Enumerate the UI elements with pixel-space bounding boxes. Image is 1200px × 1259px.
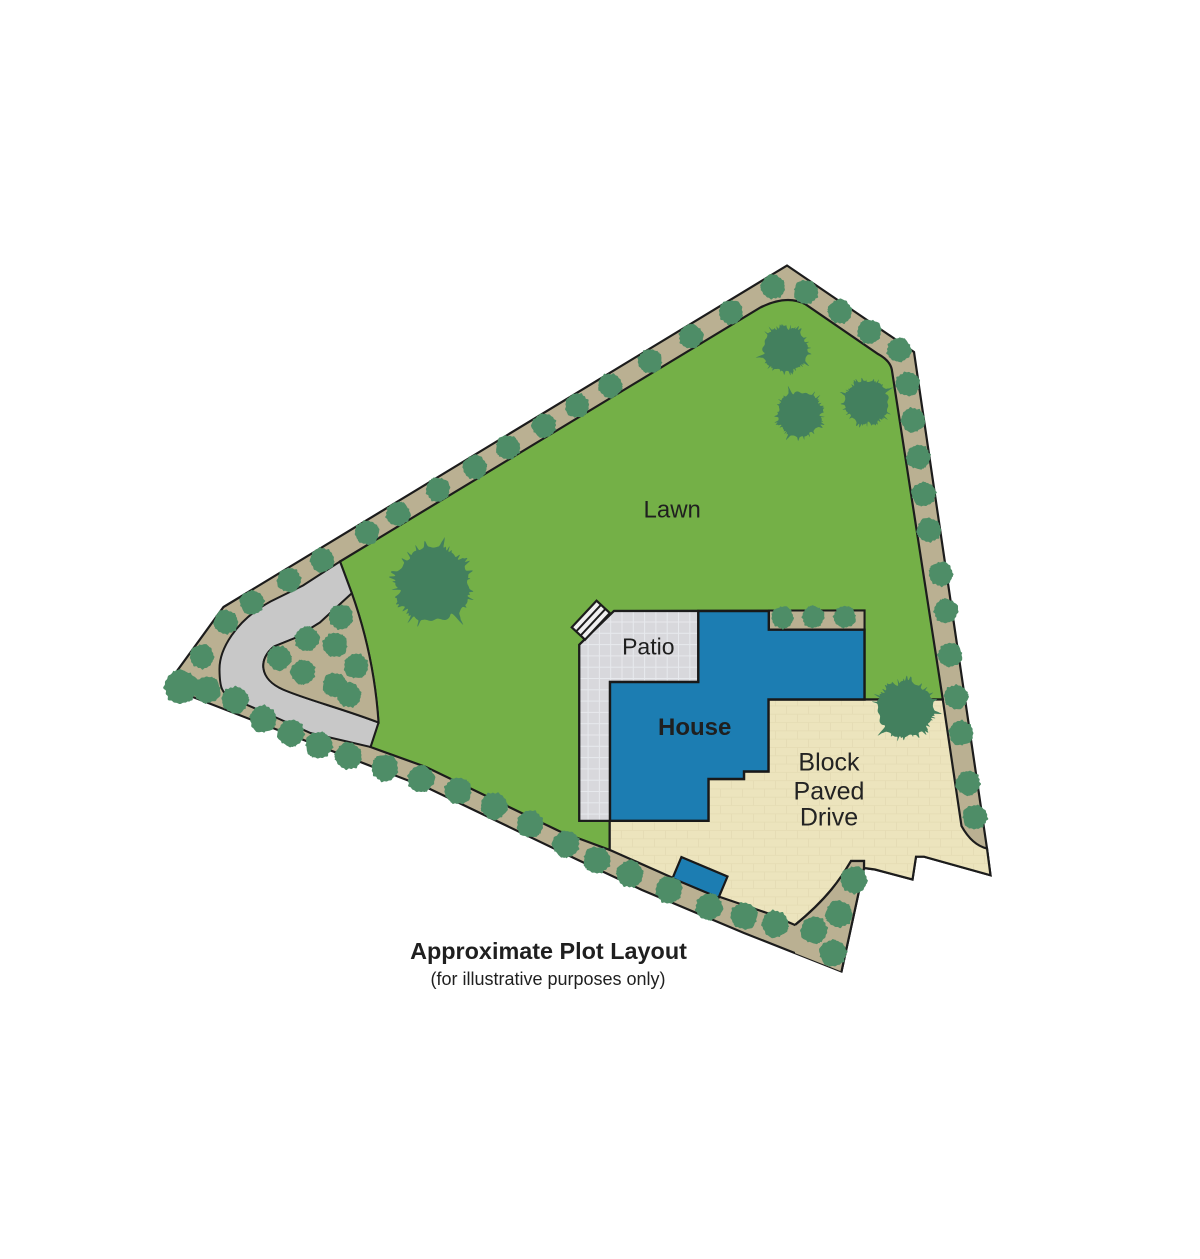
svg-text:Drive: Drive [800, 804, 858, 832]
svg-text:House: House [658, 714, 731, 741]
svg-text:Paved: Paved [794, 778, 865, 806]
svg-text:Approximate Plot Layout: Approximate Plot Layout [410, 938, 687, 964]
svg-text:(for illustrative purposes onl: (for illustrative purposes only) [430, 969, 665, 989]
svg-text:Patio: Patio [622, 634, 674, 660]
svg-text:Lawn: Lawn [644, 496, 701, 523]
svg-text:Block: Block [798, 749, 860, 777]
